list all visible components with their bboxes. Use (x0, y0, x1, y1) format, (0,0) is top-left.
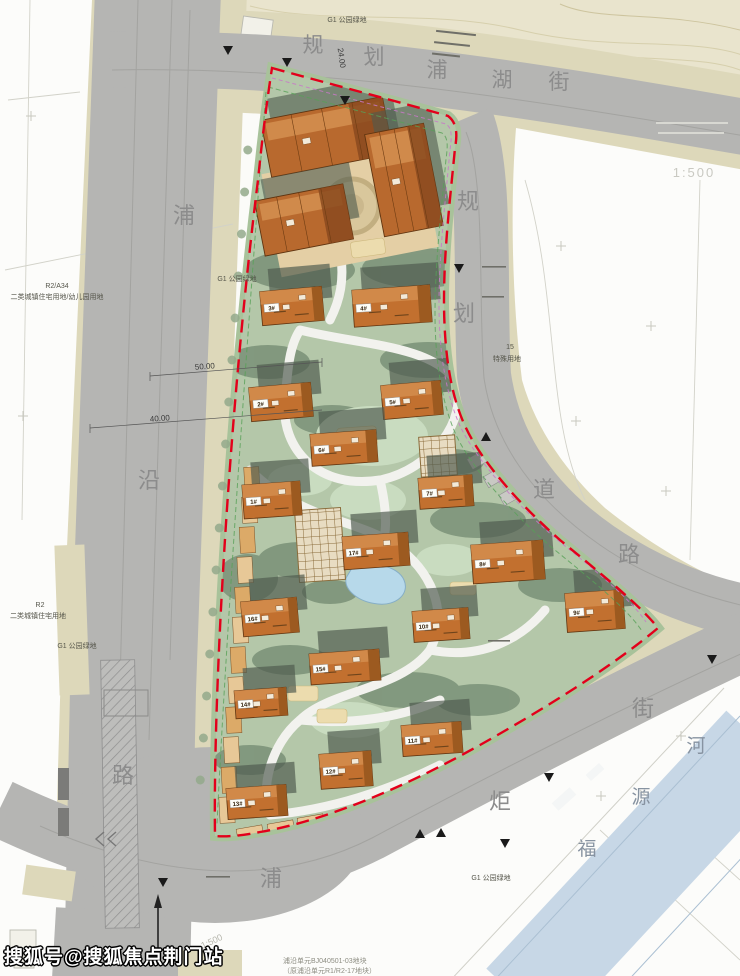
tree-icon (212, 566, 221, 575)
building-3#: 3# (258, 264, 335, 326)
building-number-label: 11# (408, 738, 419, 745)
road-width-40: 40.00 (150, 413, 171, 423)
road-width-50: 50.00 (195, 361, 216, 371)
street-name-char-left-1: 沿 (138, 468, 160, 493)
street-name-char-right-2: 道 (533, 477, 555, 502)
building-2#: 2# (247, 360, 324, 422)
tree-icon (227, 356, 236, 365)
commercial-unit (223, 737, 239, 764)
tree-icon (208, 608, 217, 617)
street-name-char-bottom-1: 炬 (489, 789, 511, 814)
building-number-label: 10# (418, 624, 429, 631)
tree-icon (221, 440, 230, 449)
street-name-char-river-0: 福 (577, 838, 596, 860)
tree-icon (205, 650, 214, 659)
label-r2-a34: R2/A34 (45, 283, 68, 290)
building-10#: 10# (410, 585, 480, 642)
building-number-label: 13# (232, 801, 243, 808)
building-number-label: 7# (426, 491, 434, 497)
plot-note-line1: 浦沿单元BJ040501-03地块 (283, 956, 367, 965)
building-6#: 6# (308, 407, 388, 466)
building-number-label: 2# (257, 402, 265, 409)
label-park-green-top: G1 公园绿地 (327, 15, 366, 24)
building-1#: 1# (240, 458, 312, 519)
building-number-label: 8# (479, 562, 487, 568)
street-name-char-top-0: 规 (303, 33, 324, 57)
tree-icon (243, 146, 252, 155)
street-name-char-right-1: 划 (453, 301, 475, 326)
label-special-15: 15 (506, 344, 514, 351)
label-park-green-west: G1 公园绿地 (57, 641, 96, 650)
tree-icon (224, 398, 233, 407)
plot-note-line2: （原浦沿单元R1/R2-17地块） (283, 966, 376, 975)
building-number-label: 17# (348, 551, 359, 558)
building-number-label: 1# (250, 499, 258, 505)
street-name-char-left-0: 浦 (173, 203, 195, 228)
tree-icon (240, 188, 249, 197)
median-hatch (101, 660, 140, 929)
tree-icon (231, 314, 240, 323)
building-number-label: 5# (389, 400, 397, 407)
tree-icon (215, 524, 224, 533)
site-plan-map: 1#2#3#4#5#6#7#8#9#10#11#12#13#14#15#16#1… (0, 0, 740, 976)
building-number-label: 3# (268, 306, 276, 313)
pergola (295, 507, 346, 582)
street-name-char-right-0: 规 (457, 189, 479, 214)
scale-label: 1:500 (673, 165, 716, 180)
street-name-char-top-3: 湖 (492, 68, 513, 92)
tree-icon (218, 482, 227, 491)
label-r2: R2 (36, 602, 45, 609)
building-number-label: 9# (573, 610, 581, 616)
building-number-label: 12# (325, 769, 336, 776)
building-number-label: 15# (315, 667, 326, 674)
label-r2-desc: 二类城镇住宅用地 (10, 611, 66, 620)
building-number-label: 6# (318, 448, 326, 454)
building-17#: 17# (340, 510, 420, 570)
building-13#: 13# (224, 762, 298, 820)
building-4#: 4# (350, 262, 442, 327)
tree-icon (199, 734, 208, 743)
commercial-unit (239, 527, 255, 554)
building-number-label: 14# (240, 702, 251, 709)
building-5#: 5# (379, 358, 454, 420)
building-number-label: 16# (247, 616, 258, 623)
street-name-char-left-2: 路 (112, 763, 134, 788)
street-name-char-river-1: 源 (631, 786, 650, 808)
label-special-15-desc: 特殊用地 (493, 354, 521, 363)
tree-icon (202, 692, 211, 701)
watermark: 搜狐号@搜狐焦点荆门站 (4, 942, 224, 969)
street-name-char-top-2: 浦 (427, 58, 448, 82)
site-plan-page: 1#2#3#4#5#6#7#8#9#10#11#12#13#14#15#16#1… (0, 0, 740, 976)
tree-icon (196, 776, 205, 785)
label-park-green-buffer: G1 公园绿地 (217, 274, 256, 283)
label-park-green-south: G1 公园绿地 (471, 873, 510, 882)
tree-icon (237, 230, 246, 239)
building-15#: 15# (307, 626, 391, 684)
street-name-char-bottom-0: 浦 (260, 866, 282, 891)
building-11#: 11# (399, 699, 473, 757)
street-name-char-river-2: 河 (686, 735, 705, 757)
building-16#: 16# (239, 574, 310, 637)
label-r2-a34-desc: 二类城镇住宅用地/幼儿园用地 (11, 292, 104, 301)
building-number-label: 4# (360, 306, 368, 312)
street-name-char-top-4: 街 (549, 70, 570, 94)
street-name-char-bottom-2: 街 (632, 696, 654, 721)
street-name-char-right-3: 路 (618, 542, 640, 567)
building-8#: 8# (469, 517, 555, 584)
street-name-char-top-1: 划 (364, 45, 385, 69)
